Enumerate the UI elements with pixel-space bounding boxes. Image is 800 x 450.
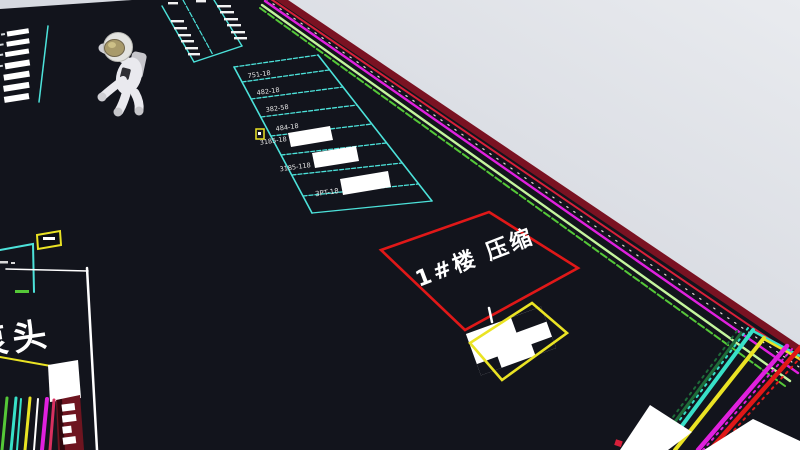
game-stage: 751-18 482-18 382-58 484-18 3185-18 3185…	[0, 0, 800, 450]
wall-text-speck	[11, 262, 15, 264]
label-box-text	[43, 237, 55, 240]
table-row-text	[224, 18, 238, 20]
astronaut-boot	[114, 108, 123, 117]
marker-dot	[258, 132, 261, 135]
table-row-text	[196, 0, 206, 2]
astronaut-boot	[135, 107, 144, 116]
table-row-text	[171, 20, 184, 22]
table-row-text	[168, 2, 178, 4]
leader-dash-green	[15, 290, 29, 293]
equipment-block	[48, 360, 81, 402]
table-row-text	[178, 34, 191, 36]
astronaut-glove	[98, 93, 107, 102]
legend-panel	[56, 395, 84, 450]
table-row-text	[231, 31, 245, 33]
table-row-text	[234, 37, 247, 39]
table-row-text	[220, 11, 234, 13]
astronaut-visor	[105, 40, 125, 57]
3d-viewport[interactable]: 751-18 482-18 382-58 484-18 3185-18 3185…	[0, 0, 800, 450]
table-row-text	[217, 5, 231, 7]
table-row-text	[181, 40, 194, 42]
table-row-text	[227, 24, 241, 26]
table-row-text	[174, 27, 187, 29]
astronaut-visor-highlight	[108, 42, 116, 48]
wall-text-speck	[0, 261, 8, 264]
table-row-text	[185, 47, 198, 49]
legend-row	[62, 426, 72, 434]
table-row-text	[188, 53, 200, 55]
